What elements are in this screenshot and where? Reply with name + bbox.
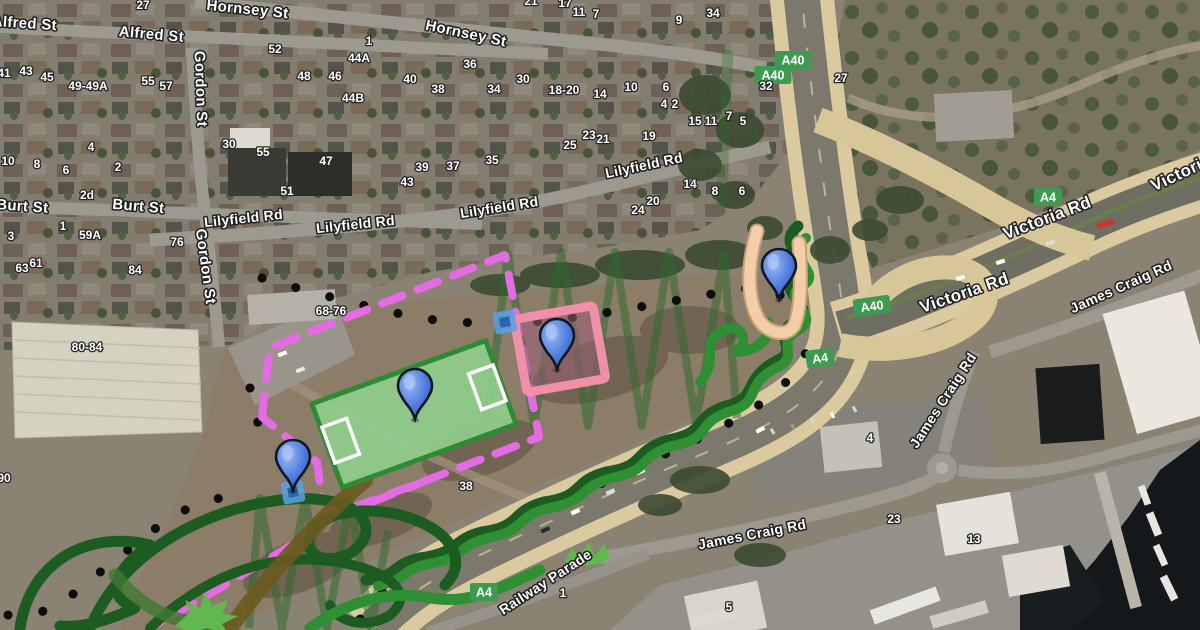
house-number: 68-76 xyxy=(316,304,347,318)
house-number: 43 xyxy=(19,64,33,78)
house-number: 27 xyxy=(136,0,150,12)
house-number: 48 xyxy=(297,69,311,83)
house-number: 57 xyxy=(159,79,173,93)
house-number: 84 xyxy=(128,263,142,277)
house-number: 6 xyxy=(739,184,746,198)
house-number: 6 xyxy=(63,163,70,177)
house-number: 90 xyxy=(0,471,11,485)
house-number: 4 xyxy=(88,140,95,154)
street-label: Burt St xyxy=(0,196,49,217)
house-number: 34 xyxy=(706,6,720,20)
house-number: 34 xyxy=(487,82,501,96)
house-number: 76 xyxy=(170,235,184,249)
house-number: 19 xyxy=(642,129,656,143)
house-number: 8 xyxy=(712,184,719,198)
house-number: 63 xyxy=(15,261,29,275)
house-number: 36 xyxy=(463,57,477,71)
house-number: 10 xyxy=(624,80,638,94)
house-number: 25 xyxy=(563,138,577,152)
house-number: 55 xyxy=(141,74,155,88)
house-number: 45 xyxy=(40,70,54,84)
house-number: 2 xyxy=(115,160,122,174)
house-number: 38 xyxy=(431,82,445,96)
house-number: 1 xyxy=(366,34,373,48)
route-badge: A4 xyxy=(470,583,498,601)
house-number: 59A xyxy=(79,228,101,242)
house-number: 2d xyxy=(80,188,94,202)
house-number: 44B xyxy=(342,91,364,105)
house-number: 5 xyxy=(726,600,733,614)
house-number: 7 xyxy=(726,109,733,123)
house-number: 7 xyxy=(593,7,600,21)
house-number: 13 xyxy=(967,532,981,546)
house-number: 30 xyxy=(222,137,236,151)
house-number: 24 xyxy=(631,203,645,217)
house-number: 44A xyxy=(348,51,370,65)
house-number: 21 xyxy=(524,0,538,8)
house-number: 52 xyxy=(268,42,282,56)
svg-text:A4: A4 xyxy=(811,350,829,366)
map-canvas[interactable]: A40A40A40A4A4A4 Hornsey StHornsey StAlfr… xyxy=(0,0,1200,630)
house-number: 1 xyxy=(560,586,567,600)
house-number: 47 xyxy=(319,154,333,168)
house-number: 39 xyxy=(415,160,429,174)
house-number: 5 xyxy=(740,114,747,128)
house-number: 9 xyxy=(676,13,683,27)
house-number: 61 xyxy=(29,256,43,270)
house-number: 11 xyxy=(705,114,718,128)
house-number: 35 xyxy=(485,153,499,167)
house-number: 38 xyxy=(459,479,473,493)
house-number: 46 xyxy=(328,69,342,83)
house-number: 8 xyxy=(34,157,41,171)
house-number: 6 xyxy=(663,80,670,94)
house-number: 14 xyxy=(593,87,607,101)
svg-text:A4: A4 xyxy=(1040,191,1056,205)
house-number: 80-84 xyxy=(72,340,103,354)
svg-text:A40: A40 xyxy=(782,54,805,68)
house-number: 15 xyxy=(688,114,702,128)
house-number: 23 xyxy=(887,512,901,526)
house-number: 41 xyxy=(0,66,11,80)
svg-text:A4: A4 xyxy=(476,586,492,600)
house-number: 40 xyxy=(403,72,417,86)
house-number: 21 xyxy=(596,132,610,146)
house-number: 43 xyxy=(400,175,414,189)
house-number: 51 xyxy=(280,184,294,198)
house-number: 4 xyxy=(867,431,874,445)
house-number: 55 xyxy=(256,145,270,159)
map-stage: A40A40A40A4A4A4 Hornsey StHornsey StAlfr… xyxy=(0,0,1200,630)
house-number: 27 xyxy=(834,71,848,85)
house-number: 3 xyxy=(8,229,15,243)
house-number: 14 xyxy=(683,177,697,191)
house-number: 30 xyxy=(516,72,530,86)
house-number: 32 xyxy=(759,79,773,93)
house-number: 4 xyxy=(661,97,668,111)
waypoint-square[interactable] xyxy=(492,309,517,334)
house-number: 2 xyxy=(672,97,679,111)
house-number: 17 xyxy=(558,0,572,10)
house-number: 49-49A xyxy=(68,79,108,93)
house-number: 23 xyxy=(582,128,596,142)
street-label: Gordon St xyxy=(191,51,211,128)
house-number: 20 xyxy=(646,194,660,208)
house-number: 11 xyxy=(573,5,586,19)
house-number: 37 xyxy=(446,159,460,173)
house-number: 18-20 xyxy=(549,83,580,97)
house-number: 10 xyxy=(1,154,15,168)
house-number: 1 xyxy=(60,219,67,233)
dark-yard xyxy=(1035,364,1104,444)
